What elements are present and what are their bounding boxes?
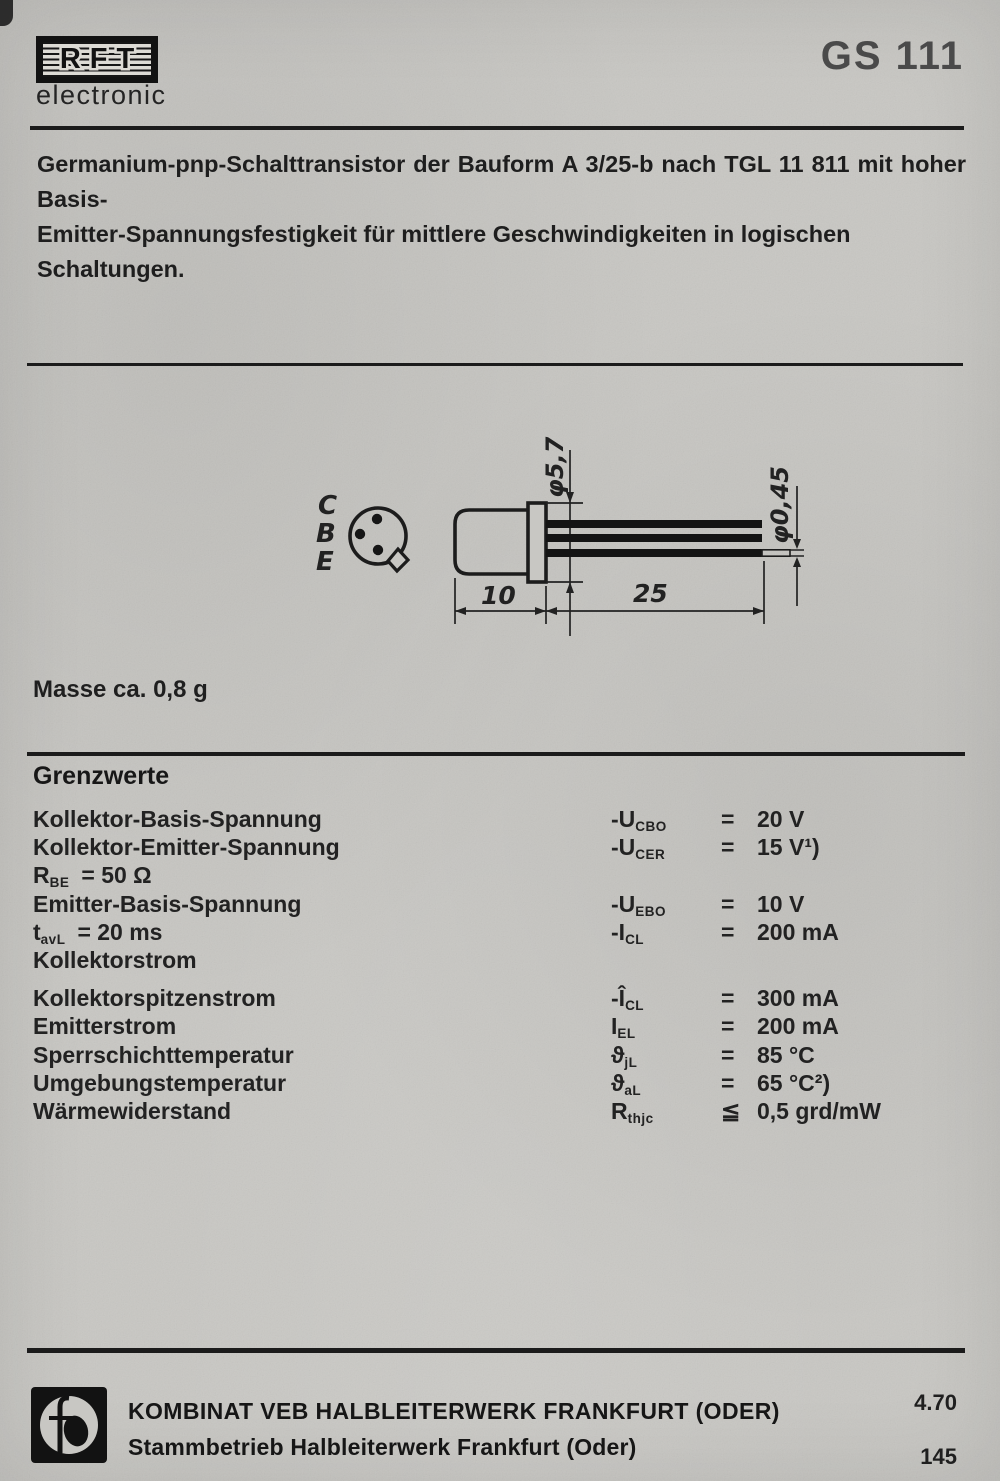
limit-relation: =	[721, 806, 757, 833]
dim-label-body-length: 10	[481, 581, 516, 610]
limit-label: Emitter-Basis-Spannung	[33, 891, 611, 918]
datasheet-page: RFT electronic GS 111 Germanium-pnp-Scha…	[0, 0, 1000, 1481]
limit-label: Kollektorstrom	[33, 947, 611, 974]
limit-relation: =	[721, 1042, 757, 1069]
limit-label: Wärmewiderstand	[33, 1098, 611, 1125]
limit-label: Kollektorspitzenstrom	[33, 985, 611, 1012]
limit-symbol: IEL	[611, 1013, 721, 1040]
limit-value: 200 mA	[757, 919, 963, 946]
scan-corner-mark	[0, 0, 13, 26]
lead-bottom	[546, 549, 762, 557]
section-rule-grenzwerte	[27, 752, 965, 756]
description-line-1: Germanium-pnp-Schalttransistor der Baufo…	[37, 147, 966, 217]
description-line-2: Emitter-Spannungsfestigkeit für mittlere…	[37, 217, 966, 287]
hfo-logo	[30, 1386, 108, 1464]
limit-label: Sperrschichttemperatur	[33, 1042, 611, 1069]
pin-dot-base	[355, 529, 365, 539]
limit-relation: =	[721, 1070, 757, 1097]
limit-symbol: ϑjL	[611, 1042, 721, 1069]
lead-end-outline	[762, 550, 790, 556]
limit-value: 0,5 grd/mW	[757, 1098, 963, 1125]
footer-company-line2: Stammbetrieb Halbleiterwerk Frankfurt (O…	[128, 1434, 637, 1461]
table-row: Emitterstrom IEL = 200 mA	[33, 1013, 963, 1041]
package-outline-drawing: C B E	[285, 428, 825, 648]
table-row: RBE= 50 Ω	[33, 862, 963, 890]
header-rule	[30, 126, 964, 130]
limit-condition: tavL= 20 ms	[33, 919, 611, 946]
footer-date-code: 4.70	[914, 1390, 957, 1416]
table-row: Wärmewiderstand Rthjc ≦ 0,5 grd/mW	[33, 1098, 963, 1126]
footer-company-line1: KOMBINAT VEB HALBLEITERWERK FRANKFURT (O…	[128, 1398, 780, 1425]
table-row: Kollektor-Basis-Spannung -UCBO = 20 V	[33, 806, 963, 834]
limit-label: Kollektor-Basis-Spannung	[33, 806, 611, 833]
limit-relation: ≦	[721, 1098, 757, 1125]
limit-relation: =	[721, 1013, 757, 1040]
table-row: Sperrschichttemperatur ϑjL = 85 °C	[33, 1042, 963, 1070]
dim-label-lead-length: 25	[633, 579, 668, 608]
brand-subtitle: electronic	[36, 80, 167, 111]
mass-note: Masse ca. 0,8 g	[33, 676, 208, 704]
transistor-flange	[528, 503, 546, 582]
lead-top	[546, 520, 762, 528]
limit-symbol: ϑaL	[611, 1070, 721, 1097]
limit-value: 85 °C	[757, 1042, 963, 1069]
limit-condition: RBE= 50 Ω	[33, 862, 611, 889]
table-row: tavL= 20 ms -ICL = 200 mA	[33, 919, 963, 947]
limit-label: Emitterstrom	[33, 1013, 611, 1040]
dim-label-flange-diameter: φ5,7	[541, 436, 569, 498]
part-number: GS 111	[821, 34, 964, 79]
limit-value: 65 °C²)	[757, 1070, 963, 1097]
limit-symbol: Rthjc	[611, 1098, 721, 1125]
limit-symbol: -ÎCL	[611, 985, 721, 1012]
rft-logo: RFT	[36, 36, 158, 83]
pin-layout-bottom-view	[350, 508, 408, 571]
limit-value: 10 V	[757, 891, 963, 918]
pin-dot-collector	[372, 514, 382, 524]
limit-symbol: -UEBO	[611, 891, 721, 918]
limit-value: 20 V	[757, 806, 963, 833]
transistor-body	[455, 510, 528, 574]
limit-symbol: -UCER	[611, 834, 721, 861]
limit-value: 300 mA	[757, 985, 963, 1012]
grenzwerte-table: Kollektor-Basis-Spannung -UCBO = 20 V Ko…	[33, 806, 963, 1126]
table-row: Umgebungstemperatur ϑaL = 65 °C²)	[33, 1070, 963, 1098]
table-row: Kollektorspitzenstrom -ÎCL = 300 mA	[33, 985, 963, 1013]
limit-value: 15 V¹)	[757, 834, 963, 861]
device-description: Germanium-pnp-Schalttransistor der Baufo…	[37, 147, 966, 287]
limit-symbol: -ICL	[611, 919, 721, 946]
dim-label-lead-diameter: φ0,45	[766, 466, 794, 544]
limit-value: 200 mA	[757, 1013, 963, 1040]
limit-relation: =	[721, 834, 757, 861]
index-tab	[388, 549, 408, 571]
lead-middle	[546, 534, 762, 542]
section-rule-top	[27, 363, 963, 366]
footer-page-number: 145	[920, 1444, 957, 1470]
grenzwerte-heading: Grenzwerte	[33, 762, 169, 791]
pin-label-b: B	[316, 519, 336, 549]
limit-label: Umgebungstemperatur	[33, 1070, 611, 1097]
rft-logo-text: RFT	[60, 43, 143, 76]
pin-dot-emitter	[373, 545, 383, 555]
limit-relation: =	[721, 985, 757, 1012]
limit-symbol: -UCBO	[611, 806, 721, 833]
limit-relation: =	[721, 891, 757, 918]
pin-label-c: C	[318, 491, 337, 521]
pin-label-e: E	[316, 547, 334, 577]
table-row: Kollektor-Emitter-Spannung -UCER = 15 V¹…	[33, 834, 963, 862]
footer-rule	[27, 1348, 965, 1353]
limit-label: Kollektor-Emitter-Spannung	[33, 834, 611, 861]
limit-relation: =	[721, 919, 757, 946]
table-row: Emitter-Basis-Spannung -UEBO = 10 V	[33, 891, 963, 919]
table-row: Kollektorstrom	[33, 947, 963, 975]
